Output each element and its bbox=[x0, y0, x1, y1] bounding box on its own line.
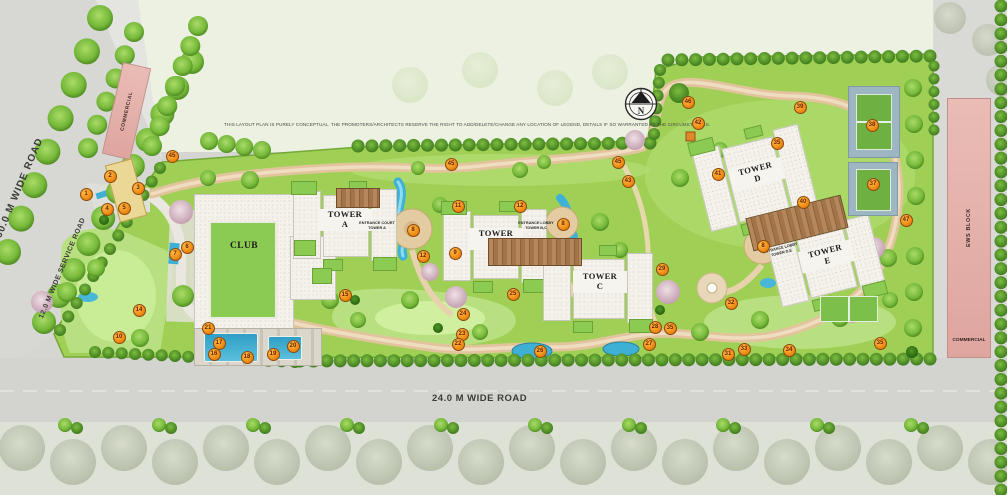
tower-c-garden-4 bbox=[599, 245, 617, 256]
road-label-24m: 24.0 M WIDE ROAD bbox=[432, 393, 527, 404]
commercial-top-label: COMMERCIAL bbox=[119, 91, 134, 132]
legend-marker-21: 21 bbox=[202, 322, 215, 335]
legend-marker-31: 31 bbox=[722, 348, 735, 361]
legend-marker-35: 35 bbox=[771, 137, 784, 150]
ews-block-label: EWS BLOCK bbox=[966, 208, 972, 247]
legend-marker-16: 16 bbox=[208, 348, 221, 361]
club-annex-green-1 bbox=[294, 240, 316, 256]
legend-marker-4: 4 bbox=[101, 203, 114, 216]
legend-marker-43: 43 bbox=[622, 175, 635, 188]
sport-court bbox=[820, 296, 878, 322]
legend-marker-38: 38 bbox=[866, 119, 879, 132]
legend-marker-24: 24 bbox=[457, 308, 470, 321]
bottom-road bbox=[0, 358, 1007, 422]
club-label: CLUB bbox=[222, 240, 266, 253]
legend-marker-3: 3 bbox=[132, 182, 145, 195]
row-housing-bc bbox=[488, 238, 582, 266]
legend-marker-12: 12 bbox=[514, 200, 527, 213]
tower-c-label: TOWER C bbox=[573, 271, 627, 293]
svg-text:N: N bbox=[638, 106, 645, 116]
legend-marker-1: 1 bbox=[80, 188, 93, 201]
disclaimer-text: THIS LAYOUT PLAN IS PURELY CONCEPTUAL. T… bbox=[224, 122, 710, 127]
tower-a-garden-1 bbox=[291, 181, 317, 195]
legend-marker-6: 6 bbox=[181, 241, 194, 254]
legend-marker-15: 15 bbox=[339, 289, 352, 302]
entrance-court-a-label: ENTRANCE COURT TOWER A bbox=[356, 221, 398, 230]
legend-marker-32: 32 bbox=[725, 297, 738, 310]
ews-commercial-label: COMMERCIAL bbox=[952, 338, 985, 343]
legend-marker-39: 39 bbox=[794, 101, 807, 114]
tower-c-garden-3 bbox=[573, 321, 593, 333]
tower-b-garden-3 bbox=[473, 281, 493, 293]
legend-marker-2: 2 bbox=[104, 170, 117, 183]
legend-marker-19: 19 bbox=[267, 348, 280, 361]
fountain bbox=[707, 283, 717, 293]
club-roof-lawn bbox=[209, 221, 277, 319]
legend-marker-42: 42 bbox=[692, 117, 705, 130]
legend-marker-14: 14 bbox=[133, 304, 146, 317]
legend-marker-12: 12 bbox=[417, 250, 430, 263]
legend-marker-40: 40 bbox=[797, 196, 810, 209]
legend-marker-5: 5 bbox=[118, 202, 131, 215]
legend-marker-22: 22 bbox=[452, 338, 465, 351]
legend-marker-47: 47 bbox=[900, 214, 913, 227]
site-plan: COMMERCIAL CLUB TOWER ATOWER BTOWER CTOW… bbox=[0, 0, 1007, 495]
legend-marker-28: 28 bbox=[649, 321, 662, 334]
legend-marker-8: 8 bbox=[557, 218, 570, 231]
ews-block-building: EWS BLOCK COMMERCIAL bbox=[947, 98, 991, 358]
legend-marker-26: 26 bbox=[534, 345, 547, 358]
entrance-lobby-bc-label: ENTRANCE LOBBY TOWER B,C bbox=[514, 221, 558, 230]
legend-marker-9: 9 bbox=[449, 247, 462, 260]
legend-marker-41: 41 bbox=[712, 168, 725, 181]
tower-a-garden-2 bbox=[373, 257, 397, 271]
pergola bbox=[686, 132, 695, 141]
legend-marker-25: 25 bbox=[507, 288, 520, 301]
legend-marker-29: 29 bbox=[656, 263, 669, 276]
legend-marker-18: 18 bbox=[241, 351, 254, 364]
legend-marker-20: 20 bbox=[287, 340, 300, 353]
legend-marker-8: 8 bbox=[407, 224, 420, 237]
legend-marker-35: 35 bbox=[664, 322, 677, 335]
north-arrow-icon: N bbox=[623, 86, 659, 122]
legend-marker-34: 34 bbox=[783, 344, 796, 357]
legend-marker-10: 10 bbox=[113, 331, 126, 344]
legend-marker-11: 11 bbox=[452, 200, 465, 213]
legend-marker-27: 27 bbox=[643, 338, 656, 351]
north-arrow: N bbox=[623, 86, 659, 122]
legend-marker-37: 37 bbox=[867, 178, 880, 191]
row-housing-a bbox=[336, 188, 380, 208]
legend-marker-45: 45 bbox=[612, 156, 625, 169]
legend-marker-45: 45 bbox=[445, 158, 458, 171]
club-annex-green-2 bbox=[312, 268, 332, 284]
tower-c-wing-right bbox=[627, 253, 653, 323]
legend-marker-45: 45 bbox=[166, 150, 179, 163]
tower-b-wing-left bbox=[443, 211, 471, 281]
legend-marker-46: 46 bbox=[682, 96, 695, 109]
legend-marker-7: 7 bbox=[169, 248, 182, 261]
legend-marker-8: 8 bbox=[757, 240, 770, 253]
legend-marker-35: 35 bbox=[874, 337, 887, 350]
legend-marker-33: 33 bbox=[738, 343, 751, 356]
